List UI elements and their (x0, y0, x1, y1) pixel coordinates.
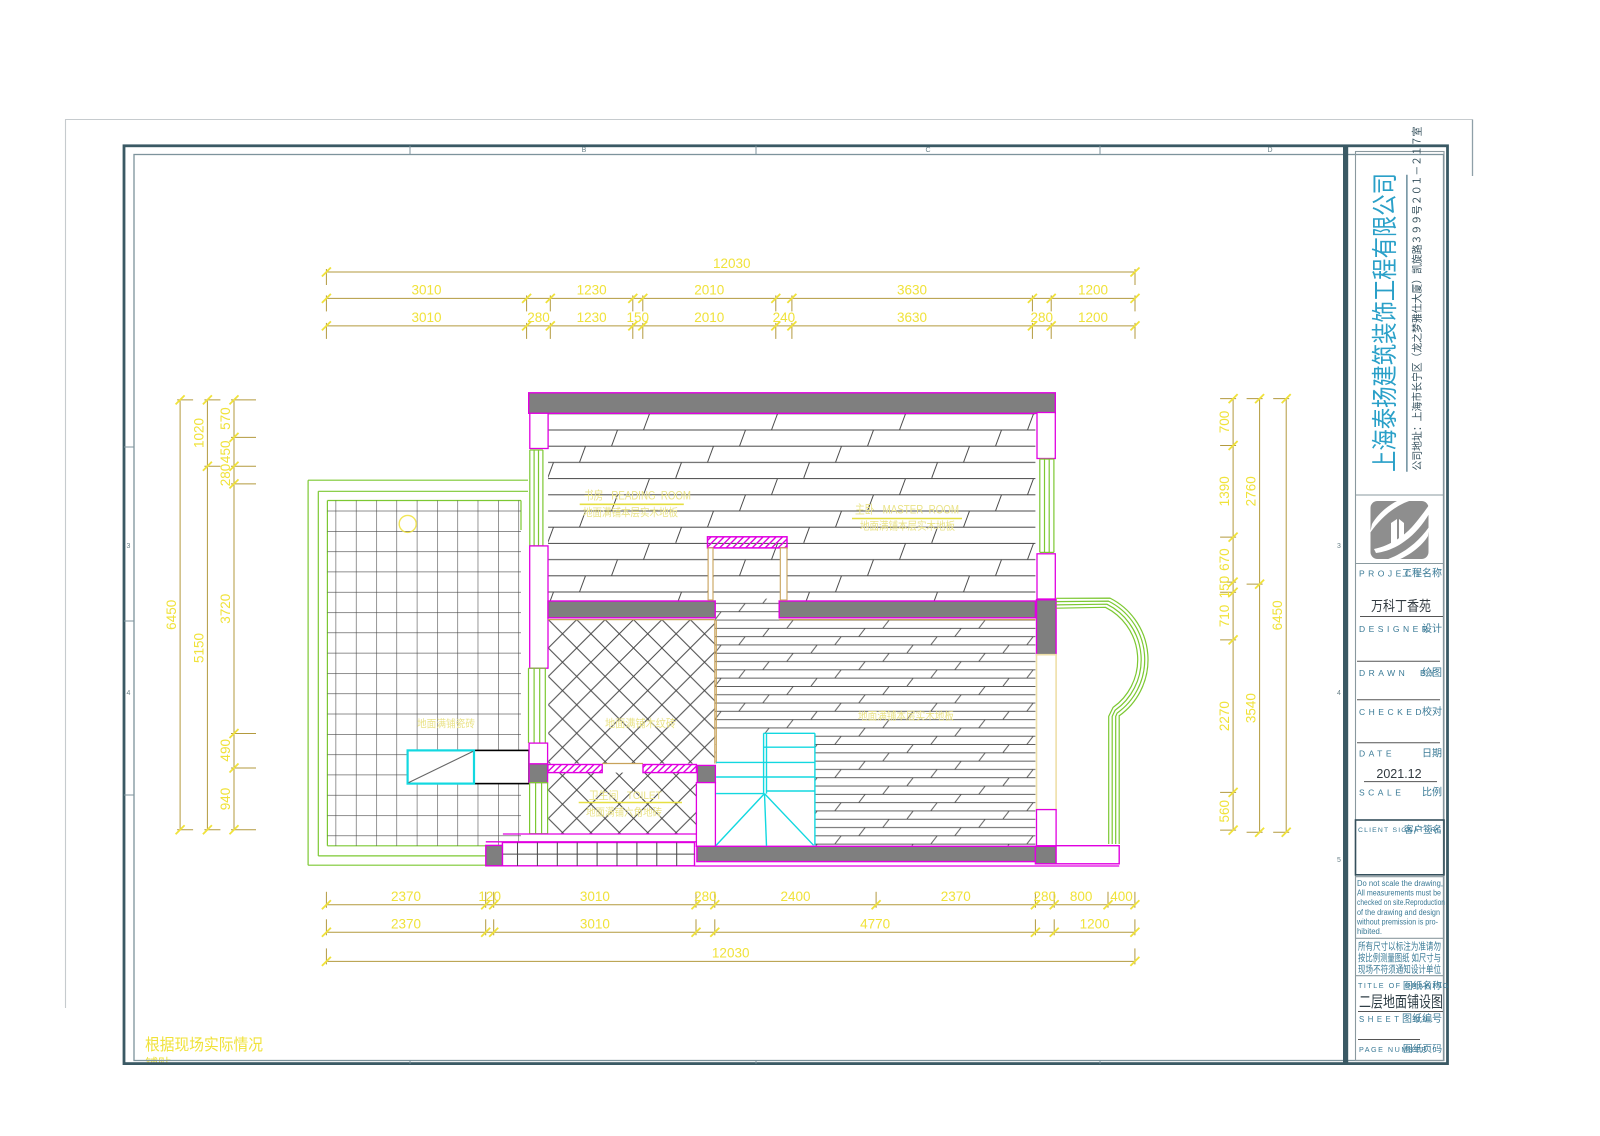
svg-text:5: 5 (1337, 857, 1341, 864)
svg-text:主卧 MASTER ROOM: 主卧 MASTER ROOM (855, 503, 959, 517)
svg-text:280: 280 (1034, 889, 1057, 904)
svg-text:hibited.: hibited. (1357, 927, 1382, 936)
svg-text:图纸编号: 图纸编号 (1402, 1012, 1442, 1025)
svg-text:3010: 3010 (411, 282, 441, 297)
svg-text:根据现场实际情况: 根据现场实际情况 (145, 1036, 263, 1054)
svg-text:560: 560 (1217, 800, 1232, 823)
svg-text:Do not scale the drawing,: Do not scale the drawing, (1357, 879, 1443, 888)
svg-text:地面满铺瓷砖: 地面满铺瓷砖 (417, 717, 475, 730)
svg-text:2270: 2270 (1217, 701, 1232, 731)
svg-text:日期: 日期 (1422, 748, 1442, 760)
svg-text:280: 280 (218, 464, 233, 487)
svg-text:6450: 6450 (164, 600, 179, 630)
svg-text:All measurements must be: All measurements must be (1357, 889, 1441, 898)
svg-text:1200: 1200 (1078, 310, 1108, 325)
svg-text:400: 400 (1110, 889, 1133, 904)
svg-text:比例: 比例 (1422, 786, 1442, 799)
svg-text:CHECKED: CHECKED (1359, 707, 1425, 717)
svg-text:二层地面铺设图: 二层地面铺设图 (1359, 993, 1443, 1011)
svg-text:2370: 2370 (391, 889, 421, 904)
svg-text:上海泰扬建筑装饰工程有限公司: 上海泰扬建筑装饰工程有限公司 (1370, 173, 1400, 472)
svg-text:6450: 6450 (1270, 600, 1285, 630)
svg-text:3010: 3010 (580, 916, 610, 931)
svg-text:按比例测量图纸 如尺寸与: 按比例测量图纸 如尺寸与 (1358, 952, 1441, 965)
svg-text:2760: 2760 (1244, 476, 1259, 506)
svg-text:地面满铺本层实木地板: 地面满铺本层实木地板 (860, 519, 955, 533)
svg-text:3540: 3540 (1244, 693, 1259, 723)
svg-text:工程名称: 工程名称 (1402, 567, 1442, 580)
svg-text:现场不符须通知设计单位: 现场不符须通知设计单位 (1358, 963, 1441, 976)
svg-text:150: 150 (627, 310, 650, 325)
svg-text:12030: 12030 (712, 945, 750, 960)
svg-text:940: 940 (218, 788, 233, 811)
svg-text:1200: 1200 (1080, 916, 1110, 931)
svg-text:1390: 1390 (1217, 476, 1232, 506)
svg-text:2370: 2370 (391, 916, 421, 931)
svg-text:1230: 1230 (577, 310, 607, 325)
svg-text:C: C (925, 147, 930, 154)
svg-text:5150: 5150 (191, 633, 206, 663)
svg-text:3: 3 (127, 543, 131, 550)
svg-text:450: 450 (218, 441, 233, 464)
svg-text:without premission is pro-: without premission is pro- (1356, 917, 1438, 926)
svg-text:12030: 12030 (713, 256, 751, 271)
svg-text:570: 570 (218, 407, 233, 430)
svg-text:公司地址：上海市长宁区（龙之梦雅仕大厦）凯旋路３９９号２０１: 公司地址：上海市长宁区（龙之梦雅仕大厦）凯旋路３９９号２０１－２１７室 (1411, 127, 1424, 471)
svg-text:DESIGNER: DESIGNER (1359, 624, 1431, 634)
svg-text:校对: 校对 (1422, 705, 1442, 718)
svg-text:4: 4 (127, 690, 131, 697)
svg-text:of the drawing and design: of the drawing and design (1357, 908, 1440, 917)
svg-text:4770: 4770 (860, 916, 890, 931)
svg-text:DATE: DATE (1359, 749, 1395, 759)
svg-text:2400: 2400 (780, 889, 810, 904)
svg-text:3630: 3630 (897, 310, 927, 325)
svg-text:3010: 3010 (580, 889, 610, 904)
svg-text:SCALE: SCALE (1359, 788, 1404, 798)
svg-text:2021.12: 2021.12 (1376, 767, 1421, 781)
svg-text:地面满铺本层实木地板: 地面满铺本层实木地板 (858, 709, 954, 723)
svg-text:280: 280 (694, 889, 717, 904)
svg-text:710: 710 (1217, 605, 1232, 628)
svg-text:书房 READING ROOM: 书房 READING ROOM (584, 488, 691, 503)
svg-text:绘图: 绘图 (1422, 666, 1442, 679)
svg-text:700: 700 (1217, 411, 1232, 434)
svg-text:万科丁香苑: 万科丁香苑 (1371, 598, 1431, 614)
svg-text:D: D (1267, 147, 1272, 154)
svg-text:4: 4 (1337, 690, 1341, 697)
svg-text:1020: 1020 (191, 418, 206, 448)
svg-text:图纸名称: 图纸名称 (1403, 979, 1442, 992)
svg-text:客户签名: 客户签名 (1404, 824, 1442, 836)
svg-text:3010: 3010 (411, 310, 441, 325)
svg-text:卫生间 TOILET: 卫生间 TOILET (589, 788, 662, 802)
svg-text:1200: 1200 (1078, 282, 1108, 297)
svg-text:800: 800 (1070, 889, 1093, 904)
svg-text:3720: 3720 (218, 594, 233, 624)
svg-text:所有尺寸以标注为准请勿: 所有尺寸以标注为准请勿 (1358, 940, 1441, 953)
svg-text:地面满铺木纹砖: 地面满铺木纹砖 (605, 716, 676, 730)
svg-text:1230: 1230 (577, 282, 607, 297)
svg-text:2010: 2010 (694, 310, 724, 325)
svg-text:地面满铺本层实木地板: 地面满铺本层实木地板 (583, 505, 678, 519)
svg-text:3: 3 (1337, 543, 1341, 550)
svg-text:地面满铺六角地砖: 地面满铺六角地砖 (586, 806, 662, 819)
svg-text:670: 670 (1217, 548, 1232, 571)
svg-text:240: 240 (773, 310, 796, 325)
svg-text:B: B (582, 147, 587, 154)
svg-text:checked on site.Reproduction: checked on site.Reproduction (1357, 898, 1445, 907)
svg-text:2010: 2010 (694, 282, 724, 297)
svg-text:280: 280 (527, 310, 550, 325)
svg-text:2370: 2370 (941, 889, 971, 904)
svg-text:图纸页码: 图纸页码 (1403, 1042, 1442, 1055)
svg-text:3630: 3630 (897, 282, 927, 297)
svg-text:150: 150 (1217, 576, 1232, 599)
svg-text:280: 280 (1031, 310, 1054, 325)
svg-text:120: 120 (478, 889, 501, 904)
svg-text:490: 490 (218, 739, 233, 762)
svg-text:设计: 设计 (1422, 622, 1442, 635)
